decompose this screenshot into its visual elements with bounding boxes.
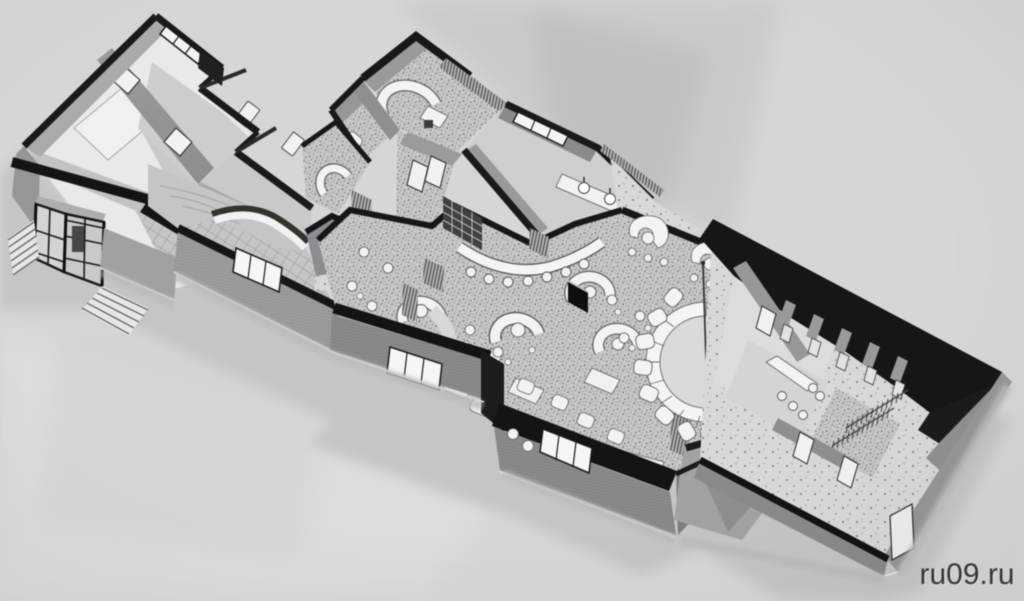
svg-text:ru09.ru: ru09.ru	[920, 558, 1015, 591]
